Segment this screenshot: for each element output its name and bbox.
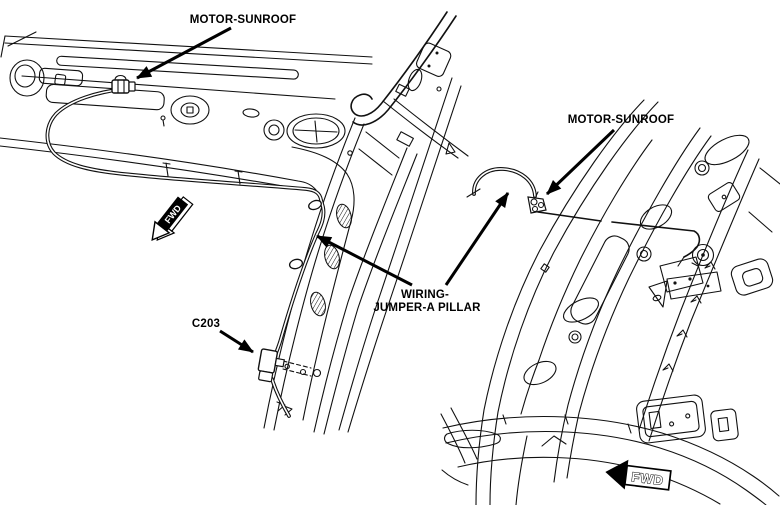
motor-sunroof-label-right: MOTOR-SUNROOF [568,114,675,126]
c203-label: C203 [192,318,220,330]
a-pillar-left [264,12,461,434]
left-view: MOTOR-SUNROOF C203 FWD [0,12,461,434]
fwd-arrow-left: FWD [145,193,195,248]
motor-sunroof-label-left: MOTOR-SUNROOF [190,14,297,26]
roof-header-panel [0,32,372,190]
rail-bracket-small [710,409,738,442]
wire-clip [289,258,304,270]
rail-ring-plate [729,257,774,297]
sunroof-motor-connector-left [112,76,135,94]
illustration-svg: MOTOR-SUNROOF C203 FWD WIRING- JUMPER-A … [0,0,780,505]
leader-arrow-c203 [220,331,253,352]
leader-arrow-motor-right [547,130,614,194]
header-screw-head [287,114,345,148]
header-grommet [264,120,284,140]
header-round-fitting [171,96,209,124]
diagram-canvas: MOTOR-SUNROOF C203 FWD WIRING- JUMPER-A … [0,0,780,505]
jumper-label-line2: JUMPER-A PILLAR [373,302,481,314]
leader-arrow-motor-left [137,28,231,78]
jumper-wire-connector [528,192,546,213]
leader-arrow-jumper-right [446,193,508,285]
jumper-wire [467,169,546,213]
jumper-label-line1: WIRING- [401,289,449,301]
